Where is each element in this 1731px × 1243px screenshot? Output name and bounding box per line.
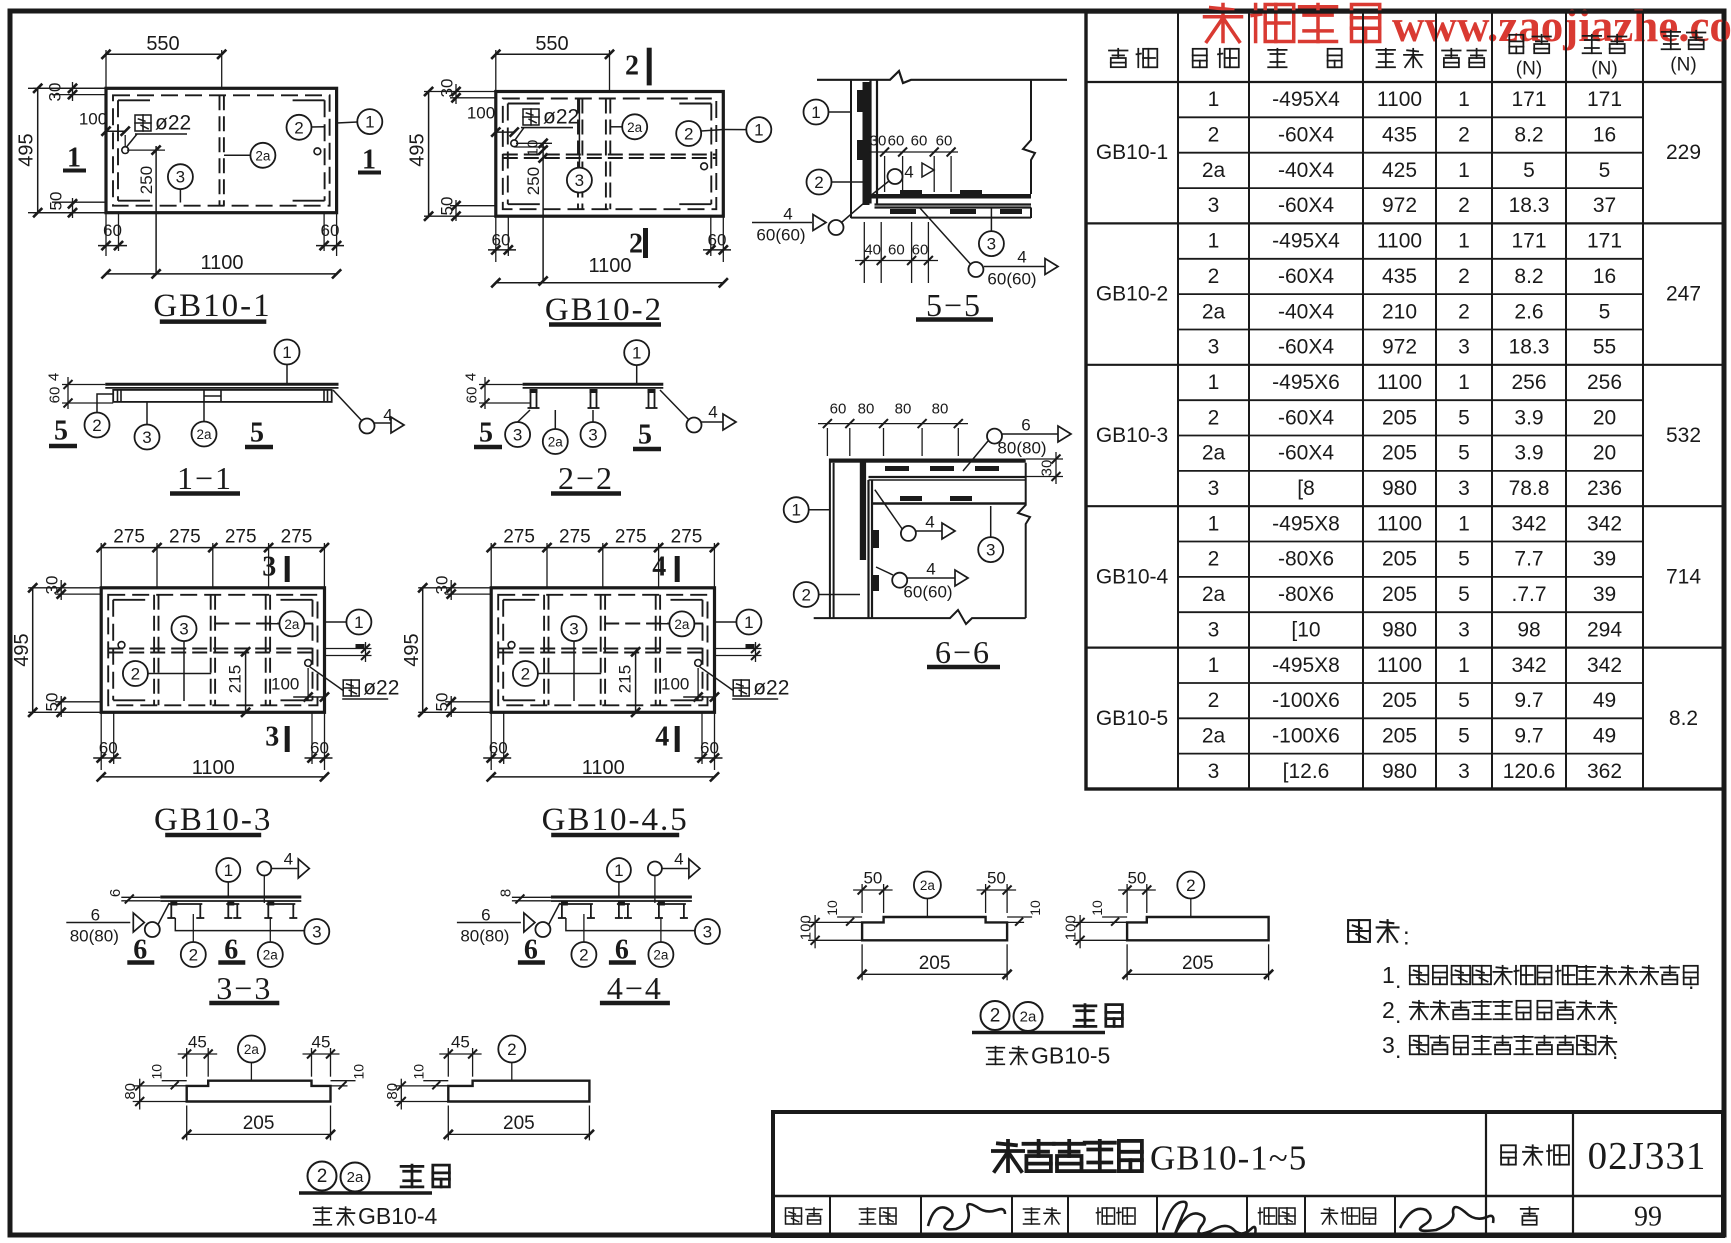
svg-text:1: 1 — [1208, 654, 1220, 677]
svg-text:250: 250 — [137, 166, 156, 194]
svg-text:3: 3 — [1208, 618, 1220, 641]
svg-text:5: 5 — [1458, 442, 1470, 465]
svg-text:.: . — [1612, 1003, 1618, 1029]
svg-text:171: 171 — [1511, 88, 1546, 111]
svg-text:40: 40 — [864, 242, 881, 259]
svg-text:60: 60 — [99, 739, 118, 758]
svg-text:100: 100 — [467, 104, 495, 123]
svg-text:60(60): 60(60) — [987, 270, 1036, 289]
svg-text:-60X4: -60X4 — [1278, 442, 1334, 465]
svg-text:www.zaojiazhe.com: www.zaojiazhe.com — [1392, 1, 1731, 51]
svg-text:4: 4 — [674, 850, 683, 869]
svg-text:1: 1 — [811, 103, 820, 122]
svg-text:3: 3 — [1458, 760, 1470, 783]
svg-text:3: 3 — [1208, 477, 1220, 500]
svg-text:10: 10 — [410, 1064, 426, 1080]
svg-text:2a: 2a — [1202, 159, 1226, 182]
svg-text:5: 5 — [479, 418, 493, 449]
svg-text:3: 3 — [1208, 194, 1220, 217]
svg-text:2a: 2a — [1202, 583, 1226, 606]
svg-text:2: 2 — [990, 1006, 1001, 1027]
svg-text:4−4: 4−4 — [607, 970, 663, 1006]
svg-text:4: 4 — [926, 560, 935, 579]
svg-text:256: 256 — [1587, 371, 1622, 394]
svg-text:495: 495 — [401, 633, 423, 666]
svg-text:294: 294 — [1587, 618, 1622, 641]
svg-text:2a: 2a — [627, 120, 643, 135]
svg-text:205: 205 — [1382, 406, 1417, 429]
svg-text:(N): (N) — [1516, 59, 1542, 80]
svg-text:4: 4 — [925, 513, 934, 532]
svg-text:2: 2 — [684, 125, 693, 144]
svg-text:2a: 2a — [347, 1169, 364, 1186]
svg-text:2: 2 — [1208, 548, 1220, 571]
svg-text:3: 3 — [987, 235, 996, 254]
svg-text:-100X6: -100X6 — [1272, 689, 1340, 712]
svg-text:210: 210 — [1382, 300, 1417, 323]
svg-text:2a: 2a — [284, 617, 300, 632]
svg-text:6−6: 6−6 — [935, 634, 991, 670]
svg-text:5: 5 — [1458, 548, 1470, 571]
svg-text:2: 2 — [507, 1040, 516, 1059]
svg-text:1: 1 — [354, 613, 363, 632]
svg-text:30: 30 — [43, 576, 62, 595]
svg-text:205: 205 — [1382, 689, 1417, 712]
svg-text:1100: 1100 — [1377, 230, 1422, 253]
svg-text:50: 50 — [43, 693, 62, 712]
svg-text:2: 2 — [294, 118, 303, 137]
svg-text:(N): (N) — [1591, 59, 1617, 80]
svg-text:2a: 2a — [674, 617, 690, 632]
svg-text:3: 3 — [513, 426, 522, 445]
svg-text:GB10-3: GB10-3 — [154, 802, 272, 838]
svg-text:2: 2 — [1458, 265, 1470, 288]
svg-text:GB10-1~5: GB10-1~5 — [1150, 1139, 1307, 1178]
svg-text:-80X6: -80X6 — [1278, 548, 1334, 571]
svg-text:171: 171 — [1587, 230, 1622, 253]
svg-text:6: 6 — [1021, 416, 1030, 435]
svg-text:60: 60 — [912, 242, 929, 259]
svg-text:2: 2 — [92, 416, 101, 435]
svg-text:-60X4: -60X4 — [1278, 336, 1334, 359]
svg-text:275: 275 — [503, 527, 535, 548]
svg-text:2: 2 — [1458, 194, 1470, 217]
svg-text:550: 550 — [146, 33, 179, 55]
svg-text:3: 3 — [312, 923, 321, 942]
svg-text:10: 10 — [149, 1064, 165, 1080]
svg-text:10: 10 — [351, 1064, 367, 1080]
svg-text:60: 60 — [830, 401, 847, 418]
svg-text:2: 2 — [1186, 876, 1195, 895]
svg-text:2a: 2a — [1020, 1009, 1037, 1026]
svg-text:3: 3 — [1208, 336, 1220, 359]
svg-text:1100: 1100 — [200, 252, 243, 274]
svg-text:1: 1 — [365, 113, 374, 132]
svg-text:5: 5 — [1458, 406, 1470, 429]
svg-text:GB10-2: GB10-2 — [1096, 283, 1168, 306]
svg-text:.: . — [1395, 1037, 1401, 1063]
svg-text:3: 3 — [569, 620, 578, 639]
svg-text:GB10-4.5: GB10-4.5 — [542, 802, 689, 838]
svg-text:-80X6: -80X6 — [1278, 583, 1334, 606]
svg-text:80(80): 80(80) — [70, 927, 119, 946]
svg-text:275: 275 — [671, 527, 703, 548]
svg-text:1100: 1100 — [1377, 88, 1422, 111]
svg-text:205: 205 — [1382, 442, 1417, 465]
svg-text:1: 1 — [754, 121, 763, 140]
svg-text:1100: 1100 — [582, 757, 625, 779]
svg-text:18.3: 18.3 — [1509, 194, 1550, 217]
svg-text:550: 550 — [535, 33, 568, 55]
svg-text:275: 275 — [615, 527, 647, 548]
svg-text:6: 6 — [91, 906, 100, 925]
svg-text:256: 256 — [1511, 371, 1546, 394]
svg-text:8.2: 8.2 — [1514, 265, 1543, 288]
svg-text:2: 2 — [1208, 124, 1220, 147]
svg-text:18.3: 18.3 — [1509, 336, 1550, 359]
svg-text:5: 5 — [1599, 300, 1611, 323]
svg-text:80(80): 80(80) — [997, 439, 1046, 458]
svg-text:4: 4 — [655, 722, 669, 753]
svg-text:80: 80 — [384, 1083, 401, 1100]
svg-text:205: 205 — [919, 953, 951, 974]
svg-text:2: 2 — [579, 946, 588, 965]
svg-text:100: 100 — [798, 915, 815, 940]
svg-text:1100: 1100 — [1377, 512, 1422, 535]
svg-text:3: 3 — [703, 923, 712, 942]
svg-text:275: 275 — [113, 527, 145, 548]
svg-text:45: 45 — [188, 1033, 207, 1052]
svg-text:50: 50 — [863, 869, 882, 888]
svg-text:.: . — [1395, 967, 1401, 993]
svg-text:714: 714 — [1666, 565, 1701, 588]
svg-text:50: 50 — [438, 197, 457, 216]
svg-text:10: 10 — [824, 900, 840, 916]
svg-text:2a: 2a — [263, 948, 279, 963]
svg-text:-495X8: -495X8 — [1272, 654, 1340, 677]
svg-text:-495X6: -495X6 — [1272, 371, 1340, 394]
svg-text:3: 3 — [986, 541, 995, 560]
svg-text:3: 3 — [262, 552, 276, 583]
svg-text:2a: 2a — [255, 148, 271, 163]
svg-text:(N): (N) — [1670, 55, 1696, 76]
svg-text:205: 205 — [1182, 953, 1214, 974]
svg-text:10: 10 — [1089, 900, 1105, 916]
svg-text:2−2: 2−2 — [558, 460, 614, 496]
svg-text:1: 1 — [1208, 512, 1220, 535]
svg-text:4: 4 — [904, 163, 913, 182]
svg-text:120.6: 120.6 — [1503, 760, 1556, 783]
svg-text:2: 2 — [1382, 997, 1395, 1023]
svg-text:205: 205 — [243, 1113, 275, 1134]
svg-text:2a: 2a — [548, 435, 564, 450]
svg-text:37: 37 — [1593, 194, 1616, 217]
svg-text:98: 98 — [1517, 618, 1540, 641]
svg-text:GB10-5: GB10-5 — [1031, 1043, 1110, 1069]
svg-text:[12.6: [12.6 — [1283, 760, 1330, 783]
svg-text:2: 2 — [1458, 124, 1470, 147]
svg-text:1: 1 — [1208, 230, 1220, 253]
svg-text:-495X8: -495X8 — [1272, 512, 1340, 535]
svg-text:60: 60 — [492, 231, 511, 250]
svg-text:78.8: 78.8 — [1509, 477, 1550, 500]
svg-text:GB10-5: GB10-5 — [1096, 707, 1168, 730]
svg-text:[8: [8 — [1297, 477, 1315, 500]
svg-text:3−3: 3−3 — [216, 970, 272, 1006]
svg-text:342: 342 — [1511, 512, 1546, 535]
svg-text:425: 425 — [1382, 159, 1417, 182]
svg-text:3: 3 — [588, 426, 597, 445]
svg-text:30: 30 — [433, 576, 452, 595]
svg-text:.: . — [1688, 968, 1694, 994]
svg-text:60(60): 60(60) — [903, 583, 952, 602]
svg-text:3: 3 — [142, 428, 151, 447]
svg-text:80: 80 — [895, 401, 912, 418]
svg-text:1100: 1100 — [192, 757, 235, 779]
svg-text:[10: [10 — [1291, 618, 1320, 641]
svg-text:362: 362 — [1587, 760, 1622, 783]
svg-text:49: 49 — [1593, 689, 1616, 712]
svg-text:-495X4: -495X4 — [1272, 88, 1340, 111]
svg-text:20: 20 — [1593, 406, 1616, 429]
svg-text:5: 5 — [1523, 159, 1535, 182]
svg-text:9.7: 9.7 — [1514, 725, 1543, 748]
svg-text:45: 45 — [312, 1033, 331, 1052]
svg-text:236: 236 — [1587, 477, 1622, 500]
svg-text:-100X6: -100X6 — [1272, 725, 1340, 748]
svg-text:50: 50 — [987, 869, 1006, 888]
svg-text:-60X4: -60X4 — [1278, 124, 1334, 147]
svg-text:80: 80 — [932, 401, 949, 418]
svg-text:4: 4 — [783, 205, 792, 224]
svg-text:39: 39 — [1593, 583, 1616, 606]
svg-text:.: . — [1612, 1038, 1618, 1064]
svg-text::: : — [1403, 924, 1410, 951]
svg-text:1: 1 — [632, 344, 641, 363]
svg-text:2a: 2a — [196, 427, 212, 442]
svg-text:60: 60 — [708, 231, 727, 250]
svg-text:30: 30 — [1039, 460, 1056, 477]
svg-text:3: 3 — [179, 620, 188, 639]
svg-text:5: 5 — [250, 418, 264, 449]
svg-text:495: 495 — [16, 133, 38, 166]
svg-text:3: 3 — [1208, 760, 1220, 783]
svg-text:1: 1 — [1458, 230, 1470, 253]
svg-text:3: 3 — [1458, 477, 1470, 500]
svg-text:2: 2 — [1208, 265, 1220, 288]
svg-text:2a: 2a — [1202, 300, 1226, 323]
svg-text:495: 495 — [407, 133, 429, 166]
svg-text:3: 3 — [265, 722, 279, 753]
svg-text:8.2: 8.2 — [1669, 707, 1698, 730]
svg-text:342: 342 — [1511, 654, 1546, 677]
svg-text:3: 3 — [575, 171, 584, 190]
svg-text:60: 60 — [888, 133, 905, 150]
svg-text:ø22: ø22 — [753, 677, 789, 700]
svg-text:20: 20 — [1593, 442, 1616, 465]
svg-text:4: 4 — [463, 373, 480, 381]
svg-text:2a: 2a — [244, 1042, 260, 1057]
svg-text:2: 2 — [814, 173, 823, 192]
svg-text:342: 342 — [1587, 654, 1622, 677]
svg-text:972: 972 — [1382, 194, 1417, 217]
svg-text:2a: 2a — [653, 948, 669, 963]
svg-text:ø22: ø22 — [363, 677, 399, 700]
svg-text:2: 2 — [189, 946, 198, 965]
svg-text:ø22: ø22 — [543, 106, 579, 129]
svg-text:2: 2 — [1208, 689, 1220, 712]
svg-text:80(80): 80(80) — [460, 927, 509, 946]
svg-text:1−1: 1−1 — [177, 460, 233, 496]
svg-text:435: 435 — [1382, 124, 1417, 147]
svg-text:-40X4: -40X4 — [1278, 300, 1334, 323]
svg-text:171: 171 — [1587, 88, 1622, 111]
svg-text:171: 171 — [1511, 230, 1546, 253]
svg-text:60: 60 — [489, 739, 508, 758]
svg-text:60: 60 — [888, 242, 905, 259]
svg-text:275: 275 — [281, 527, 313, 548]
svg-text:GB10-1: GB10-1 — [1096, 141, 1168, 164]
svg-text:60: 60 — [936, 133, 953, 150]
svg-text:1: 1 — [1458, 654, 1470, 677]
svg-text:2: 2 — [317, 1166, 328, 1187]
svg-text:9.7: 9.7 — [1514, 689, 1543, 712]
svg-text:55: 55 — [1593, 336, 1616, 359]
svg-text:250: 250 — [524, 167, 543, 195]
svg-text:80: 80 — [858, 401, 875, 418]
svg-text:5: 5 — [638, 420, 652, 451]
svg-text:1: 1 — [1208, 88, 1220, 111]
svg-text:1100: 1100 — [1377, 654, 1422, 677]
svg-text:GB10-1: GB10-1 — [153, 288, 271, 324]
svg-text:02J331: 02J331 — [1588, 1135, 1707, 1178]
svg-text:1: 1 — [1208, 371, 1220, 394]
svg-text:215: 215 — [226, 665, 245, 693]
svg-text:1100: 1100 — [588, 255, 631, 277]
svg-text:-60X4: -60X4 — [1278, 406, 1334, 429]
svg-text:4: 4 — [708, 403, 717, 422]
svg-text:1: 1 — [1458, 371, 1470, 394]
svg-text:215: 215 — [616, 665, 635, 693]
svg-text:1100: 1100 — [1377, 371, 1422, 394]
svg-text:.7.7: .7.7 — [1511, 583, 1546, 606]
svg-text:3: 3 — [1458, 618, 1470, 641]
svg-text:205: 205 — [1382, 548, 1417, 571]
svg-text:2: 2 — [521, 665, 530, 684]
svg-text:1: 1 — [282, 343, 291, 362]
svg-text:16: 16 — [1593, 265, 1616, 288]
svg-text:99: 99 — [1634, 1202, 1662, 1233]
svg-text:980: 980 — [1382, 760, 1417, 783]
svg-text:50: 50 — [1127, 869, 1146, 888]
svg-text:205: 205 — [1382, 583, 1417, 606]
svg-text:GB10-4: GB10-4 — [1096, 565, 1169, 588]
svg-text:50: 50 — [47, 192, 66, 211]
svg-text:1: 1 — [791, 501, 800, 520]
svg-text:7.7: 7.7 — [1514, 548, 1543, 571]
svg-text:980: 980 — [1382, 618, 1417, 641]
svg-text:1: 1 — [224, 861, 233, 880]
svg-text:1: 1 — [744, 613, 753, 632]
svg-text:1: 1 — [1382, 962, 1395, 988]
svg-text:30: 30 — [438, 79, 457, 98]
svg-text:5: 5 — [1458, 583, 1470, 606]
svg-text:2: 2 — [1458, 300, 1470, 323]
svg-text:3: 3 — [176, 168, 185, 187]
svg-text:205: 205 — [503, 1113, 535, 1134]
svg-text:60: 60 — [103, 221, 122, 240]
svg-text:16: 16 — [1593, 124, 1616, 147]
svg-text:5: 5 — [54, 416, 68, 447]
svg-text:80: 80 — [122, 1083, 139, 1100]
svg-text:ø22: ø22 — [155, 112, 191, 135]
svg-text:2a: 2a — [920, 878, 936, 893]
svg-text:1: 1 — [1458, 88, 1470, 111]
svg-text:60(60): 60(60) — [756, 226, 805, 245]
svg-text:342: 342 — [1587, 512, 1622, 535]
svg-text:2: 2 — [801, 586, 810, 605]
svg-text:100: 100 — [271, 675, 299, 694]
svg-text:2.6: 2.6 — [1514, 300, 1543, 323]
svg-text:5: 5 — [1458, 725, 1470, 748]
svg-text:49: 49 — [1593, 725, 1616, 748]
svg-text:275: 275 — [559, 527, 591, 548]
svg-text:2: 2 — [1208, 406, 1220, 429]
svg-text:229: 229 — [1666, 141, 1701, 164]
svg-text:3.9: 3.9 — [1514, 406, 1543, 429]
svg-text:60: 60 — [700, 739, 719, 758]
svg-text:1: 1 — [614, 861, 623, 880]
svg-text:275: 275 — [169, 527, 201, 548]
svg-text:980: 980 — [1382, 477, 1417, 500]
svg-text:205: 205 — [1382, 725, 1417, 748]
svg-text:4: 4 — [46, 373, 63, 381]
svg-text:1: 1 — [1458, 159, 1470, 182]
svg-text:3: 3 — [1458, 336, 1470, 359]
svg-text:10: 10 — [1027, 900, 1043, 916]
svg-text:60: 60 — [310, 739, 329, 758]
svg-text:8: 8 — [497, 889, 514, 897]
svg-text:2a: 2a — [1202, 442, 1226, 465]
svg-text:-40X4: -40X4 — [1278, 159, 1334, 182]
svg-text:532: 532 — [1666, 424, 1701, 447]
svg-text:60: 60 — [464, 387, 481, 404]
svg-text:275: 275 — [225, 527, 257, 548]
svg-text:-495X4: -495X4 — [1272, 230, 1340, 253]
svg-text:GB10-3: GB10-3 — [1096, 424, 1168, 447]
svg-text:4: 4 — [652, 552, 666, 583]
svg-text:1: 1 — [1458, 512, 1470, 535]
svg-text:247: 247 — [1666, 283, 1701, 306]
svg-text:30: 30 — [46, 83, 65, 102]
svg-text:100: 100 — [1063, 915, 1080, 940]
svg-text:60: 60 — [321, 221, 340, 240]
svg-text:3: 3 — [1382, 1032, 1395, 1058]
svg-text:495: 495 — [11, 633, 33, 666]
svg-text:60: 60 — [911, 133, 928, 150]
svg-text:3.9: 3.9 — [1514, 442, 1543, 465]
svg-text:2: 2 — [131, 665, 140, 684]
svg-text:45: 45 — [451, 1033, 470, 1052]
svg-text:6: 6 — [107, 889, 124, 897]
svg-text:2: 2 — [625, 51, 639, 82]
svg-text:100: 100 — [661, 675, 689, 694]
svg-text:50: 50 — [433, 693, 452, 712]
svg-text:4: 4 — [284, 850, 293, 869]
svg-text:30: 30 — [870, 133, 887, 150]
svg-text:6: 6 — [481, 906, 490, 925]
svg-text:-60X4: -60X4 — [1278, 194, 1334, 217]
